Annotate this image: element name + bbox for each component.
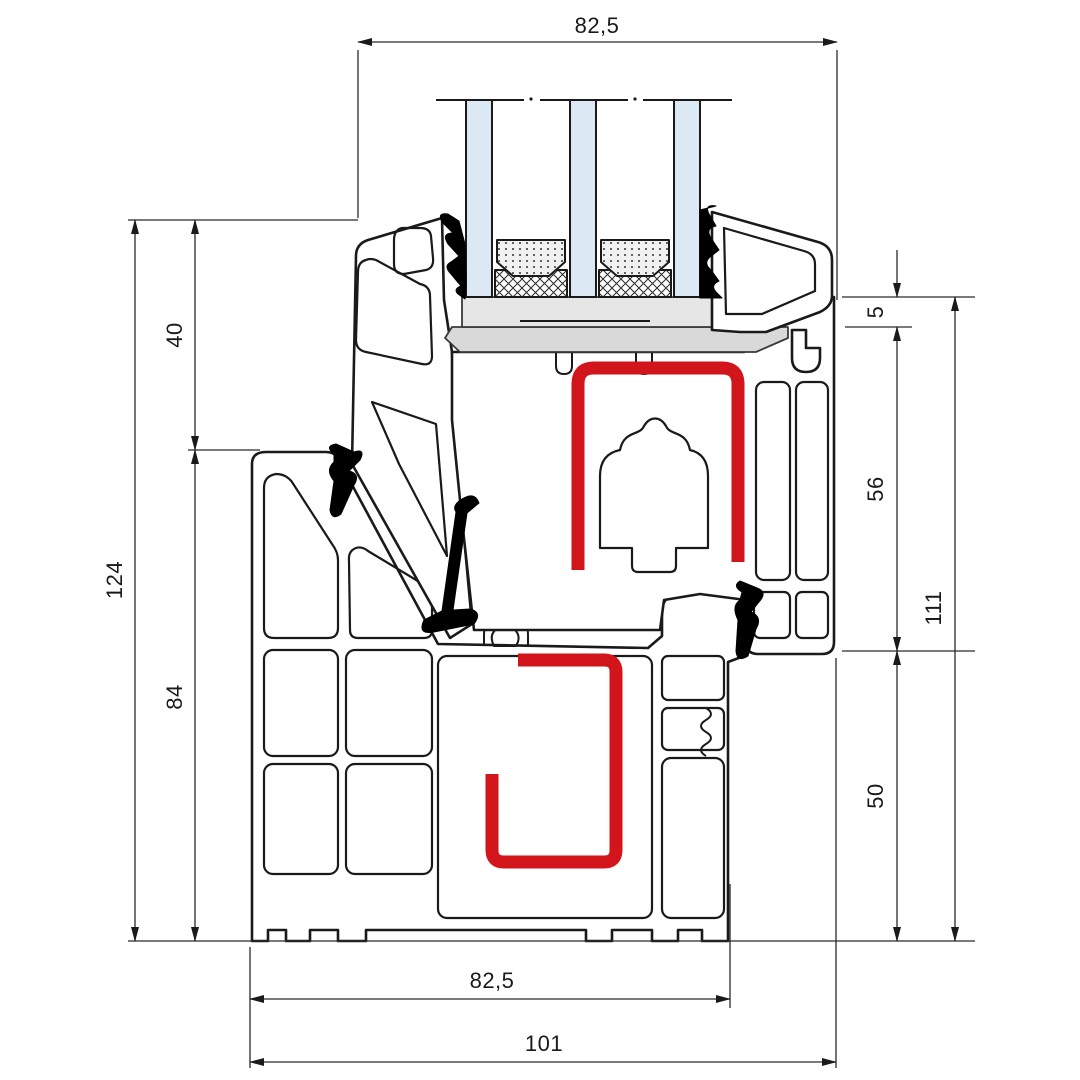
glass-spacer <box>601 240 669 276</box>
dimension-top-sash-width: 82,5 <box>358 13 837 42</box>
dimension-total-width-bottom: 101 <box>250 1031 836 1062</box>
dimension-frame-height: 50 <box>863 651 897 941</box>
dimension-total-height: 124 <box>102 220 135 941</box>
glass-spacer <box>497 240 565 276</box>
dimension-sash-height: 56 <box>863 327 897 651</box>
dimension-label: 82,5 <box>470 968 515 993</box>
break-tick <box>633 97 636 100</box>
dimension-label: 5 <box>863 306 888 319</box>
dimension-label: 82,5 <box>575 13 620 38</box>
dimension-frame-face-height: 84 <box>162 450 195 941</box>
break-tick <box>529 97 532 100</box>
glass-pane-middle <box>570 100 596 297</box>
dimension-sash-frame-height: 111 <box>921 297 955 941</box>
dimension-label: 84 <box>162 684 187 709</box>
dimension-label: 56 <box>863 476 888 501</box>
glass-pane-outer <box>466 100 492 297</box>
dimension-label: 111 <box>921 591 946 626</box>
dimension-label: 50 <box>863 783 888 808</box>
dimension-label: 124 <box>102 561 127 599</box>
glass-pane-inner <box>674 100 700 297</box>
dimension-label: 40 <box>162 322 187 347</box>
dimension-glazing-packer: 5 <box>863 250 897 318</box>
dimension-frame-width-bottom: 82,5 <box>250 968 730 999</box>
triple-glazing <box>436 97 732 297</box>
window-profile-section-drawing: 82,5 40 124 84 5 56 111 50 82,5 101 <box>0 0 1080 1080</box>
dimension-sash-face-height: 40 <box>162 220 195 450</box>
glazing-bead <box>712 212 832 332</box>
dimension-label: 101 <box>525 1031 563 1056</box>
technical-drawing-page: 82,5 40 124 84 5 56 111 50 82,5 101 <box>0 0 1080 1080</box>
